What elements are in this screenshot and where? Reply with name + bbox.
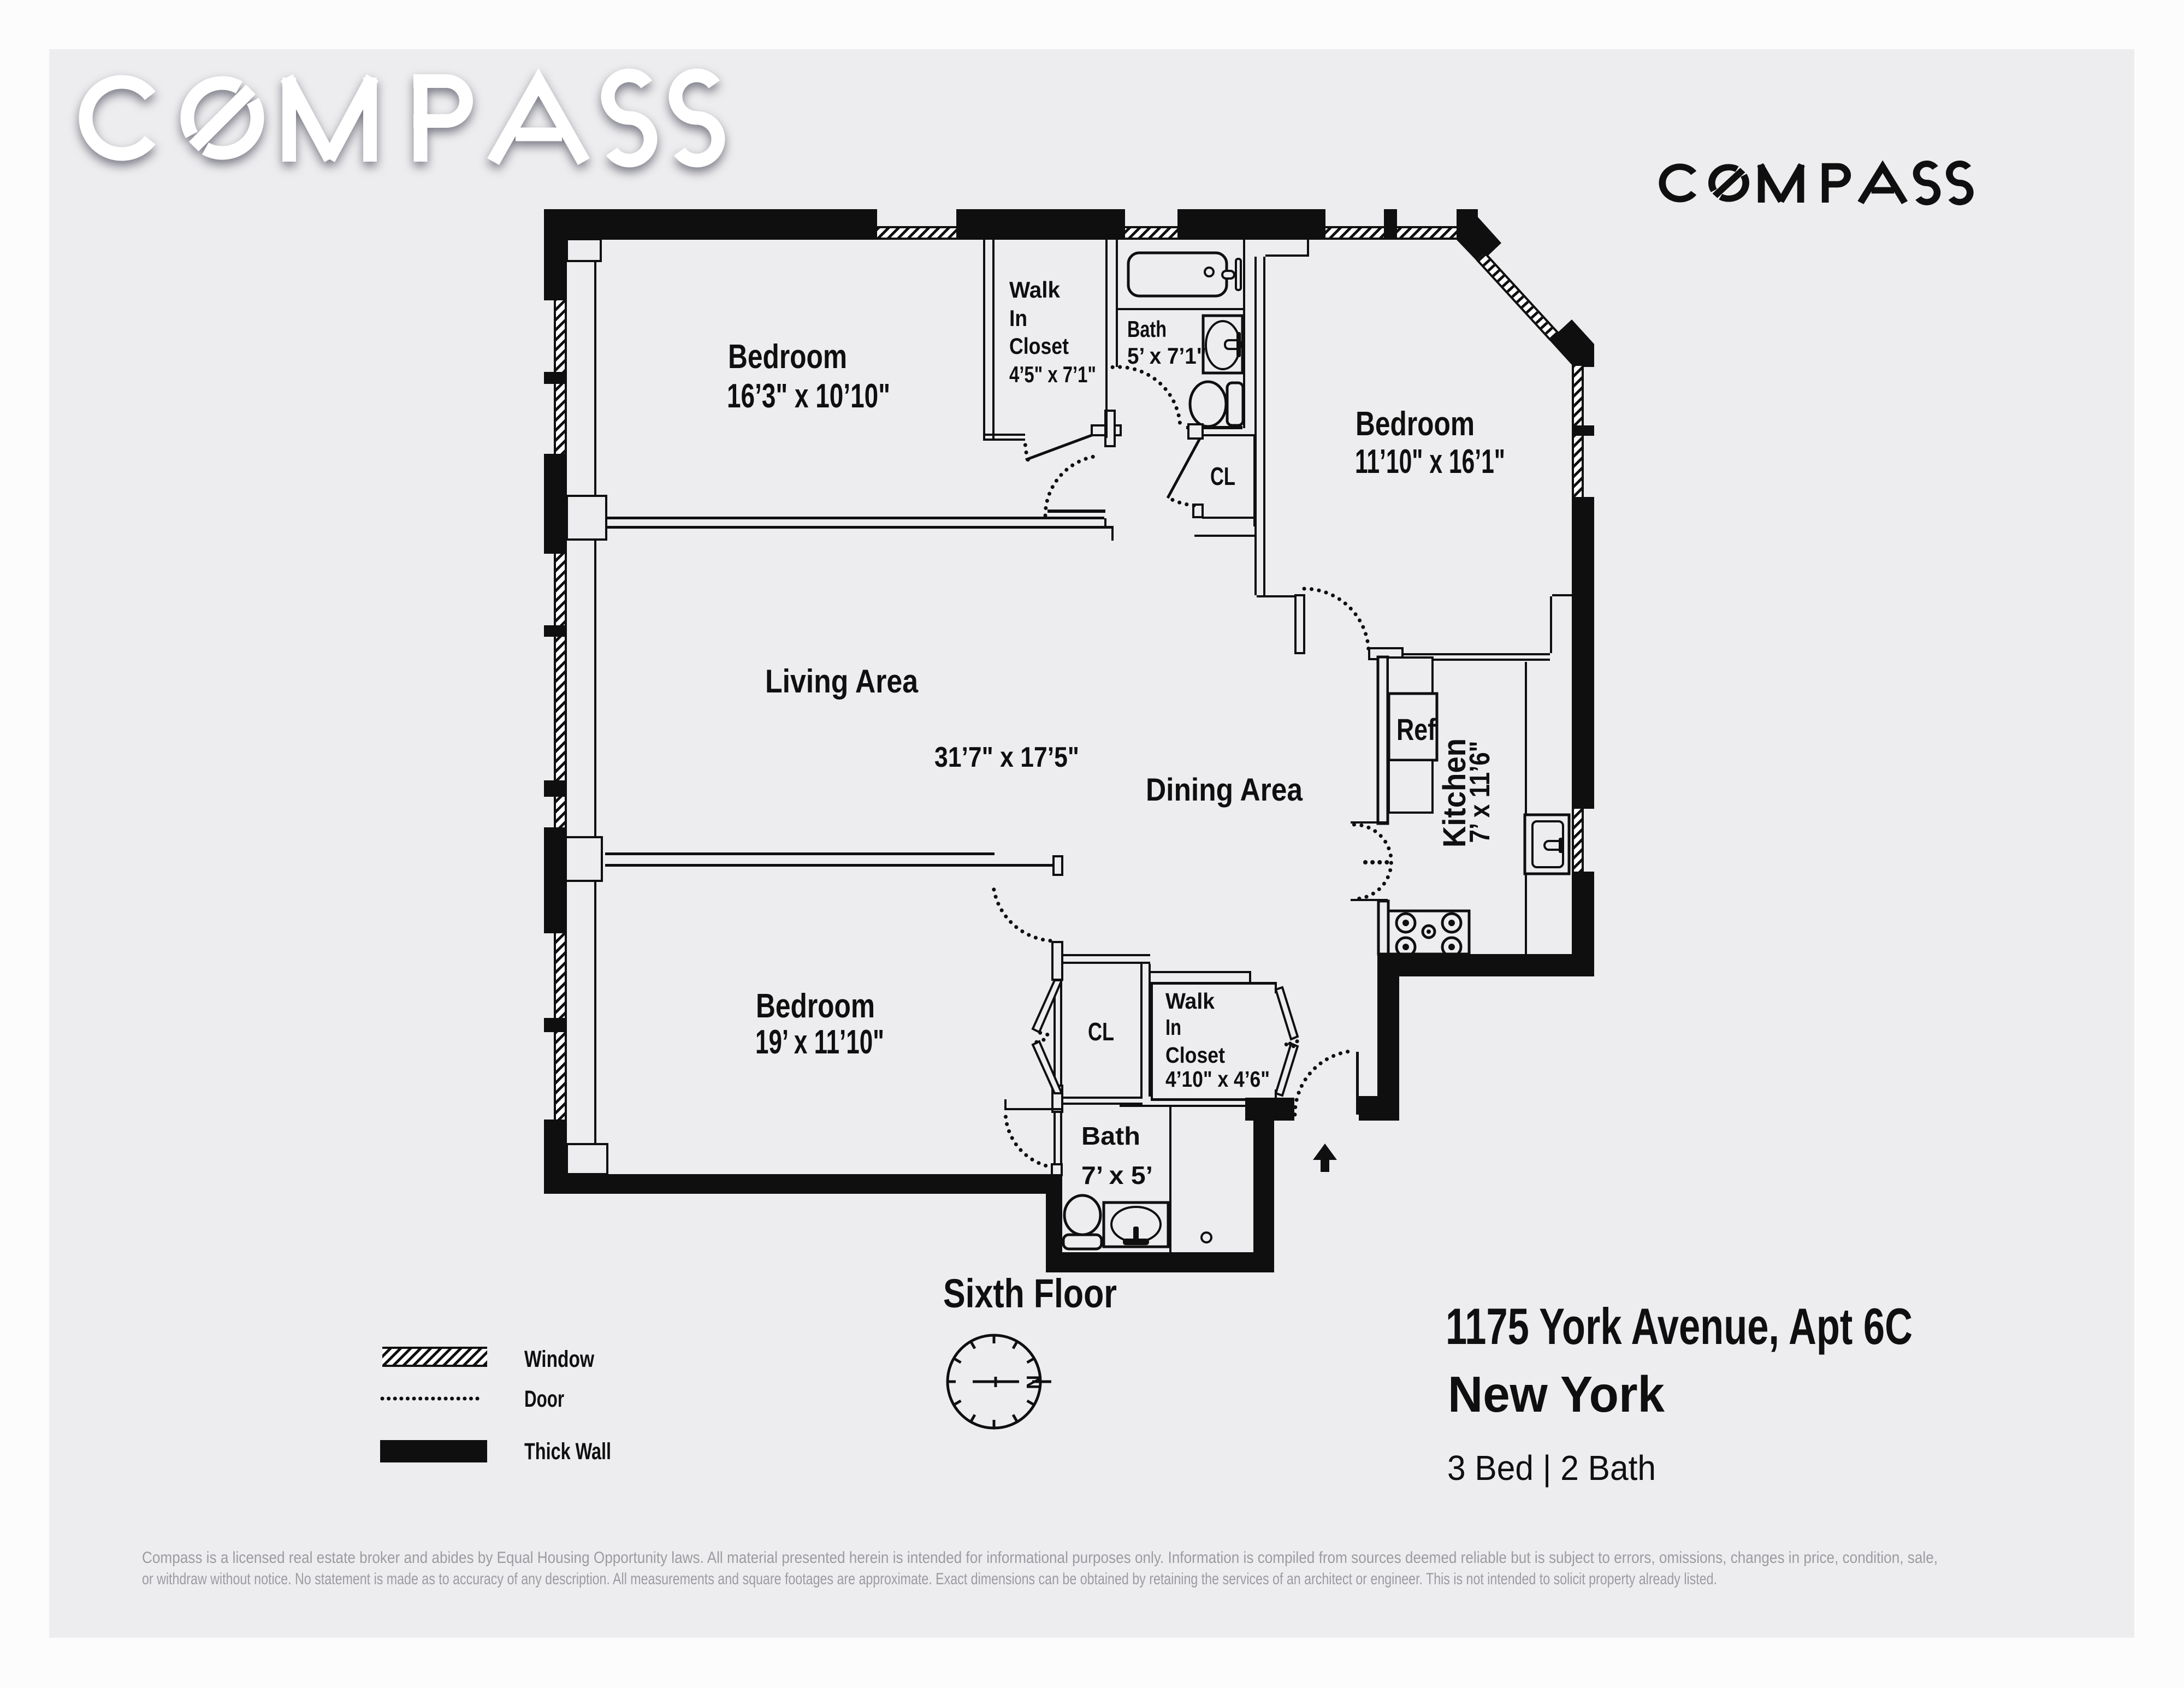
svg-text:Bedroom: Bedroom <box>756 987 875 1025</box>
svg-text:Bath: Bath <box>1081 1122 1140 1150</box>
svg-text:Compass is a licensed real est: Compass is a licensed real estate broker… <box>142 1549 1938 1567</box>
svg-text:Dining Area: Dining Area <box>1146 772 1303 808</box>
svg-text:CL: CL <box>1210 462 1235 490</box>
svg-text:or withdraw without notice. No: or withdraw without notice. No statement… <box>142 1570 1717 1588</box>
svg-text:Walk: Walk <box>1165 988 1215 1014</box>
svg-text:4’10" x 4’6": 4’10" x 4’6" <box>1165 1067 1270 1092</box>
svg-text:Bedroom: Bedroom <box>728 338 847 376</box>
svg-text:Closet: Closet <box>1009 333 1069 359</box>
svg-text:Sixth Floor: Sixth Floor <box>943 1271 1117 1316</box>
svg-text:11’10" x 16’1": 11’10" x 16’1" <box>1355 443 1505 481</box>
svg-text:Bath: Bath <box>1127 316 1167 342</box>
svg-text:Door: Door <box>524 1386 564 1412</box>
svg-text:N: N <box>1022 1375 1045 1389</box>
svg-text:CL: CL <box>1088 1017 1114 1046</box>
svg-text:1175 York Avenue, Apt 6C: 1175 York Avenue, Apt 6C <box>1446 1298 1913 1355</box>
svg-text:Thick Wall: Thick Wall <box>524 1438 611 1465</box>
svg-text:Closet: Closet <box>1165 1043 1225 1068</box>
svg-text:Window: Window <box>524 1346 594 1372</box>
svg-text:In: In <box>1165 1015 1181 1040</box>
svg-text:5’ x 7’1": 5’ x 7’1" <box>1127 343 1206 369</box>
svg-text:3 Bed | 2 Bath: 3 Bed | 2 Bath <box>1447 1448 1656 1488</box>
svg-text:Living Area: Living Area <box>765 663 919 700</box>
svg-text:4’5" x 7’1": 4’5" x 7’1" <box>1009 362 1096 387</box>
svg-text:7’ x 5’: 7’ x 5’ <box>1081 1161 1153 1189</box>
svg-text:16’3" x 10’10": 16’3" x 10’10" <box>727 377 890 415</box>
svg-text:19’ x 11’10": 19’ x 11’10" <box>755 1023 884 1061</box>
svg-text:Bedroom: Bedroom <box>1356 405 1475 443</box>
svg-text:In: In <box>1009 305 1027 331</box>
svg-text:Walk: Walk <box>1009 277 1061 303</box>
svg-text:31’7" x 17’5": 31’7" x 17’5" <box>934 742 1079 773</box>
svg-text:7’ x 11’6": 7’ x 11’6" <box>1464 741 1496 843</box>
svg-text:Ref: Ref <box>1396 712 1436 747</box>
svg-text:New York: New York <box>1448 1366 1665 1423</box>
